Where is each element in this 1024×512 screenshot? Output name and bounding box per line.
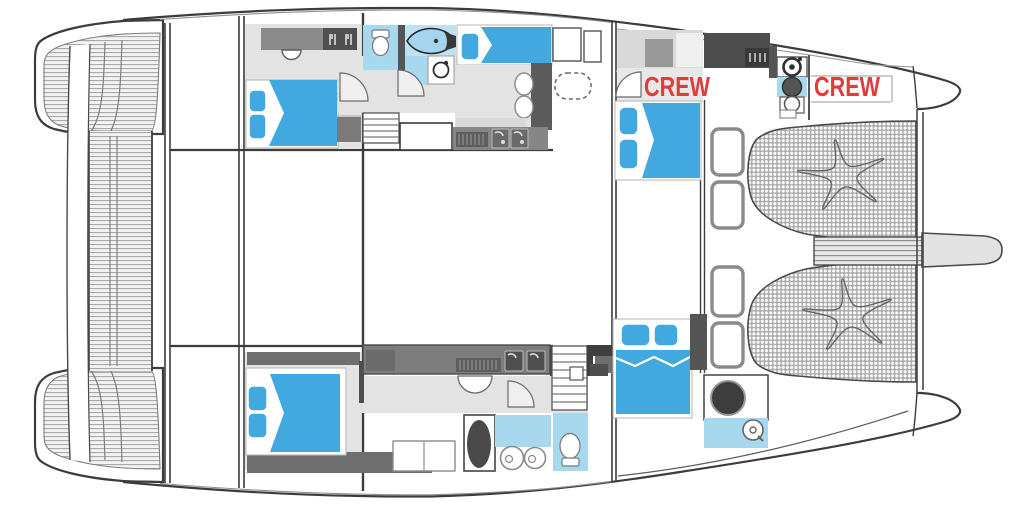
- svg-text:CREW: CREW: [814, 71, 880, 102]
- svg-text:CREW: CREW: [644, 71, 710, 102]
